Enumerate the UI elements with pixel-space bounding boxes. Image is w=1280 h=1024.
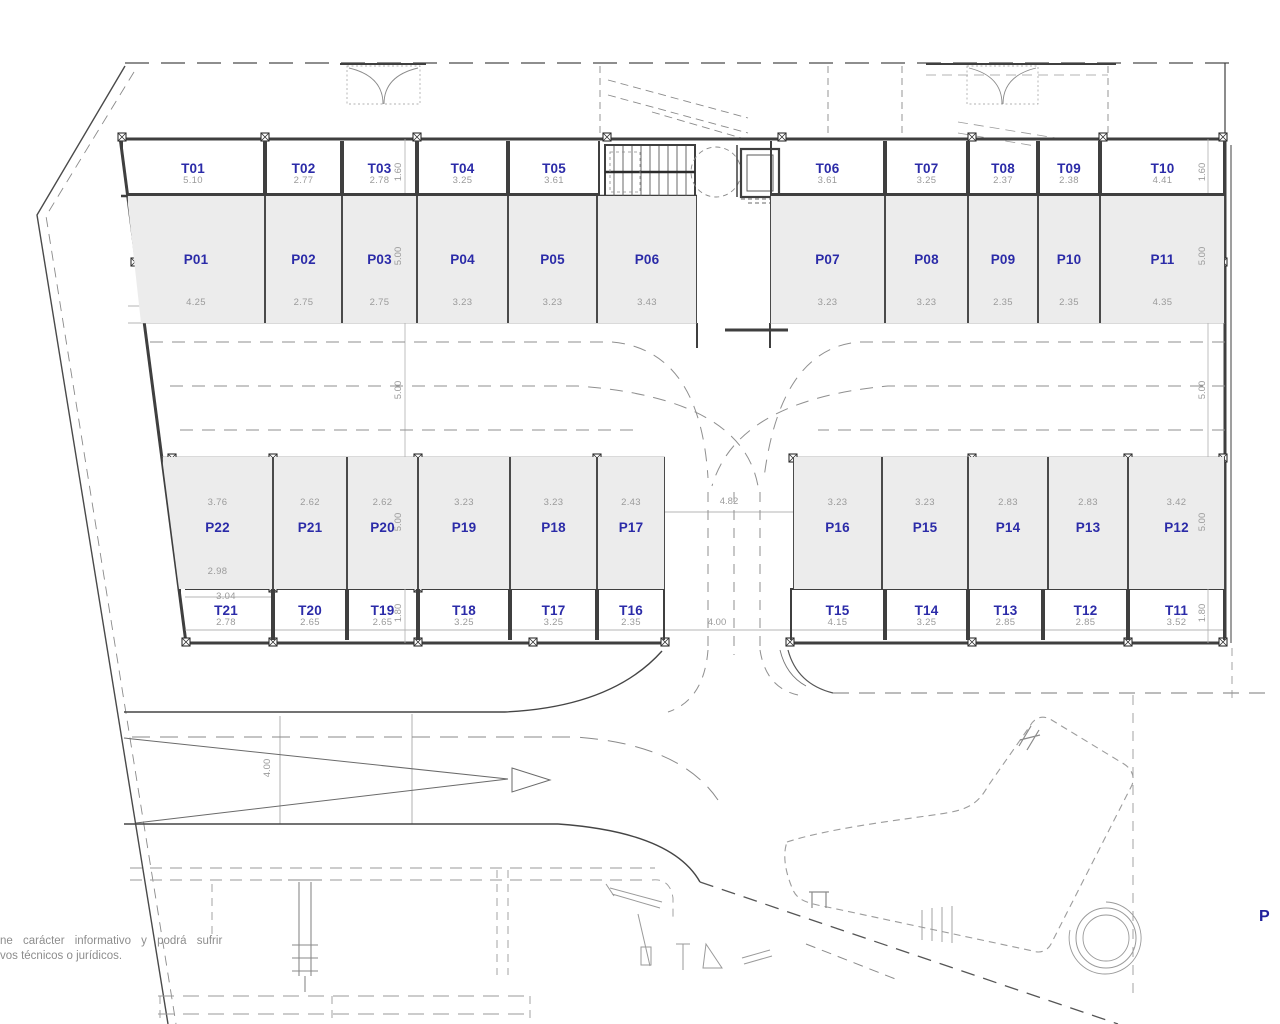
unit-label: P13 [1049,520,1127,535]
unit-label: T21 [181,603,271,618]
unit-label: T17 [512,603,595,618]
unit-label: T11 [1130,603,1223,618]
unit-label: P02 [266,252,341,267]
unit-label: P10 [1039,252,1099,267]
unit-dimension: 3.23 [771,297,884,308]
lane-width-dimension: 4.82 [707,496,751,508]
unit-label: T05 [510,161,598,176]
unit-label: T19 [349,603,416,618]
unit-label: T08 [970,161,1036,176]
storage-room: T063.61 [770,141,885,196]
unit-dimension: 3.61 [772,175,883,186]
unit-label: T07 [887,161,966,176]
unit-dimension: 2.65 [275,617,345,628]
storage-room: 3.04T212.78 [179,589,273,640]
unit-dimension: 3.25 [887,617,966,628]
storage-room: T173.25 [510,589,597,640]
storage-room: T122.85 [1043,589,1128,640]
unit-label: T20 [275,603,345,618]
unit-dimension: 2.35 [1039,297,1099,308]
parking-space: P063.43 [597,196,697,323]
unit-label: P16 [794,520,881,535]
unit-dimension: 2.85 [1045,617,1126,628]
unit-label: T15 [792,603,883,618]
unit-dimension: 5.10 [123,175,263,186]
disclaimer-text: ne carácter informativo y podrá sufrir v… [0,934,222,964]
unit-dimension: 2.78 [181,617,271,628]
ramp-width-dimension: 4.00 [262,751,274,785]
band-height-dimension: 5.00 [1197,373,1209,407]
unit-label: T18 [420,603,508,618]
unit-label: P18 [511,520,596,535]
unit-dimension: 2.38 [1040,175,1098,186]
unit-label: P17 [598,520,664,535]
storage-room: T202.65 [273,589,347,640]
parking-space: P053.23 [508,196,597,323]
parking-space: P142.83 [968,457,1048,589]
storage-room: T132.85 [968,589,1043,640]
storage-room: T073.25 [885,141,968,196]
unit-label: T16 [599,603,663,618]
storage-room: T092.38 [1038,141,1100,196]
unit-dimension: 2.75 [343,297,416,308]
parking-space: P223.762.98 [162,457,273,589]
parking-space: P073.23 [770,196,885,323]
unit-secondary-dimension: 2.98 [163,566,272,577]
unit-label: P19 [419,520,509,535]
band-height-dimension: 5.00 [393,239,405,273]
unit-dimension: 3.23 [509,297,596,308]
unit-label: P20 [348,520,417,535]
band-height-dimension: 5.00 [393,505,405,539]
unit-label: T12 [1045,603,1126,618]
parking-space: P132.83 [1048,457,1128,589]
unit-dimension: 4.15 [792,617,883,628]
unit-dimension: 3.23 [419,497,509,508]
unit-label: T01 [123,161,263,176]
unit-dimension: 3.23 [794,497,881,508]
unit-label: P15 [883,520,967,535]
unit-label: P12 [1129,520,1224,535]
unit-dimension: 4.25 [128,297,264,308]
storage-room: T032.78 [342,141,417,196]
band-height-dimension: 1.60 [393,155,405,189]
unit-dimension: 3.52 [1130,617,1223,628]
unit-label: P08 [886,252,967,267]
storage-room: T143.25 [885,589,968,640]
unit-dimension: 2.37 [970,175,1036,186]
unit-dimension: 2.75 [266,297,341,308]
disclaimer-line-2: vos técnicos o jurídicos. [0,949,222,964]
unit-dimension: 2.65 [349,617,416,628]
parking-space: P202.62 [347,457,418,589]
band-height-dimension: 1.80 [393,596,405,630]
band-height-dimension: 5.00 [1197,239,1209,273]
parking-space: P092.35 [968,196,1038,323]
parking-space: P102.35 [1038,196,1100,323]
unit-label: P21 [274,520,346,535]
storage-room: T192.65 [347,589,418,640]
parking-space: P183.23 [510,457,597,589]
unit-dimension: 4.35 [1101,297,1224,308]
unit-dimension: 3.25 [419,175,506,186]
unit-dimension: 2.35 [599,617,663,628]
unit-label: P09 [969,252,1037,267]
storage-room: T183.25 [418,589,510,640]
unit-label: P06 [598,252,696,267]
unit-dimension: 2.83 [1049,497,1127,508]
parking-space: P014.25 [127,196,265,323]
unit-label: P22 [163,520,272,535]
unit-dimension: 3.25 [512,617,595,628]
unit-label: P14 [969,520,1047,535]
floor-plan-canvas: T015.10T022.77T032.78T043.25T053.61T063.… [0,0,1280,1024]
parking-space: P163.23 [793,457,882,589]
storage-room: T162.35 [597,589,665,640]
unit-dimension: 2.35 [969,297,1037,308]
parking-space: P123.42 [1128,457,1225,589]
storage-room: T113.52 [1128,589,1225,640]
parking-space: P043.23 [417,196,508,323]
unit-dimension: 3.23 [418,297,507,308]
unit-dimension: 3.23 [886,297,967,308]
unit-dimension: 2.77 [267,175,340,186]
lane-exit-dimension: 4.00 [695,617,739,629]
parking-space: P193.23 [418,457,510,589]
unit-dimension: 3.42 [1129,497,1224,508]
unit-dimension: 2.43 [598,497,664,508]
unit-label: P07 [771,252,884,267]
unit-dimension: 3.43 [598,297,696,308]
unit-dimension: 3.23 [883,497,967,508]
corner-label: P [1259,908,1270,926]
unit-label: P03 [343,252,416,267]
band-height-dimension: 5.00 [393,373,405,407]
storage-room: T015.10 [121,141,265,196]
unit-dimension: 3.23 [511,497,596,508]
unit-label: T02 [267,161,340,176]
unit-dimension: 2.85 [970,617,1041,628]
unit-dimension: 3.61 [510,175,598,186]
unit-label: P04 [418,252,507,267]
unit-dimension: 2.83 [969,497,1047,508]
parking-space: P022.75 [265,196,342,323]
unit-label: P01 [128,252,264,267]
unit-label: T14 [887,603,966,618]
unit-label: T06 [772,161,883,176]
unit-dimension: 3.76 [163,497,272,508]
parking-space: P083.23 [885,196,968,323]
unit-dimension: 3.25 [887,175,966,186]
unit-label: P05 [509,252,596,267]
parking-space: P172.43 [597,457,665,589]
storage-room: T043.25 [417,141,508,196]
unit-label: T13 [970,603,1041,618]
storage-room: T053.61 [508,141,600,196]
band-height-dimension: 5.00 [1197,505,1209,539]
unit-dimension: 2.62 [274,497,346,508]
storage-room: T022.77 [265,141,342,196]
unit-dimension: 3.25 [420,617,508,628]
storage-room: T154.15 [790,589,885,640]
unit-label: T04 [419,161,506,176]
band-height-dimension: 1.60 [1197,155,1209,189]
unit-secondary-dimension: 3.04 [181,591,271,602]
band-height-dimension: 1.80 [1197,596,1209,630]
parking-space: P153.23 [882,457,968,589]
unit-dimension: 2.62 [348,497,417,508]
parking-space: P212.62 [273,457,347,589]
unit-label: T09 [1040,161,1098,176]
disclaimer-line-1: ne carácter informativo y podrá sufrir [0,934,222,949]
storage-room: T082.37 [968,141,1038,196]
parking-space: P032.75 [342,196,417,323]
